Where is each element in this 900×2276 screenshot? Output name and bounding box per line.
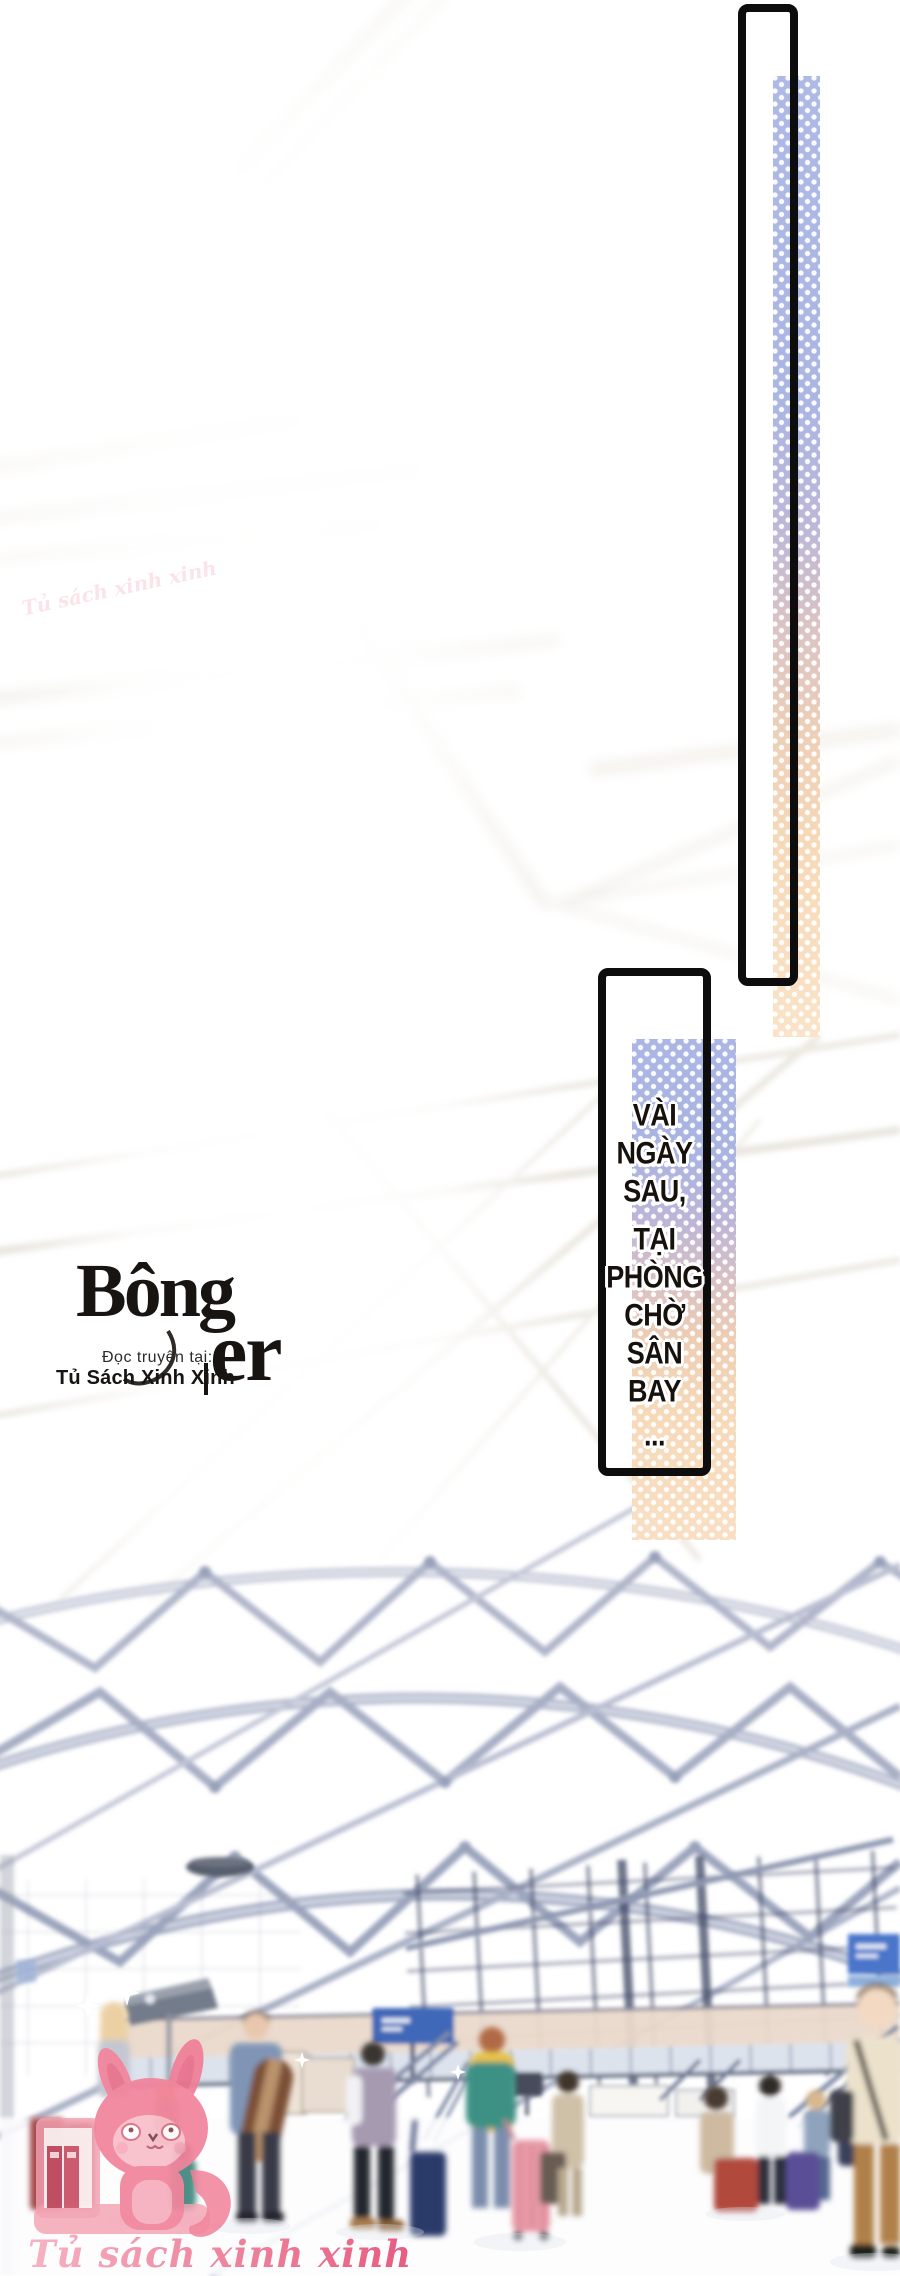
caption-text: VÀI NGÀY SAU, TẠI PHÒNG CHỜ SÂN BAY ... xyxy=(598,1096,711,1454)
ceiling-lamp xyxy=(186,1857,254,1877)
logo-site-name: Tủ Sách Xinh Xinh xyxy=(56,1367,235,1390)
mascot-caption-text: Tủ sách xinh xinh xyxy=(28,2232,412,2276)
tall-panel-border xyxy=(738,4,798,986)
wayfinding-sign-right xyxy=(848,1934,900,1987)
sparkle-icon xyxy=(76,1994,100,2018)
caption-line: ... xyxy=(598,1413,711,1458)
logo-tagline: Đọc truyện tại: xyxy=(102,1349,213,1367)
caption-line: SAU, xyxy=(598,1169,711,1214)
comic-page: VÀI NGÀY SAU, TẠI PHÒNG CHỜ SÂN BAY ... … xyxy=(0,0,900,2276)
publisher-logo: Bông er Đọc truyện tại: Tủ Sách Xinh Xin… xyxy=(50,1245,320,1415)
logo-divider-bar xyxy=(204,1363,208,1395)
caption-line: BAY xyxy=(598,1369,711,1414)
small-sign xyxy=(16,1960,36,1982)
